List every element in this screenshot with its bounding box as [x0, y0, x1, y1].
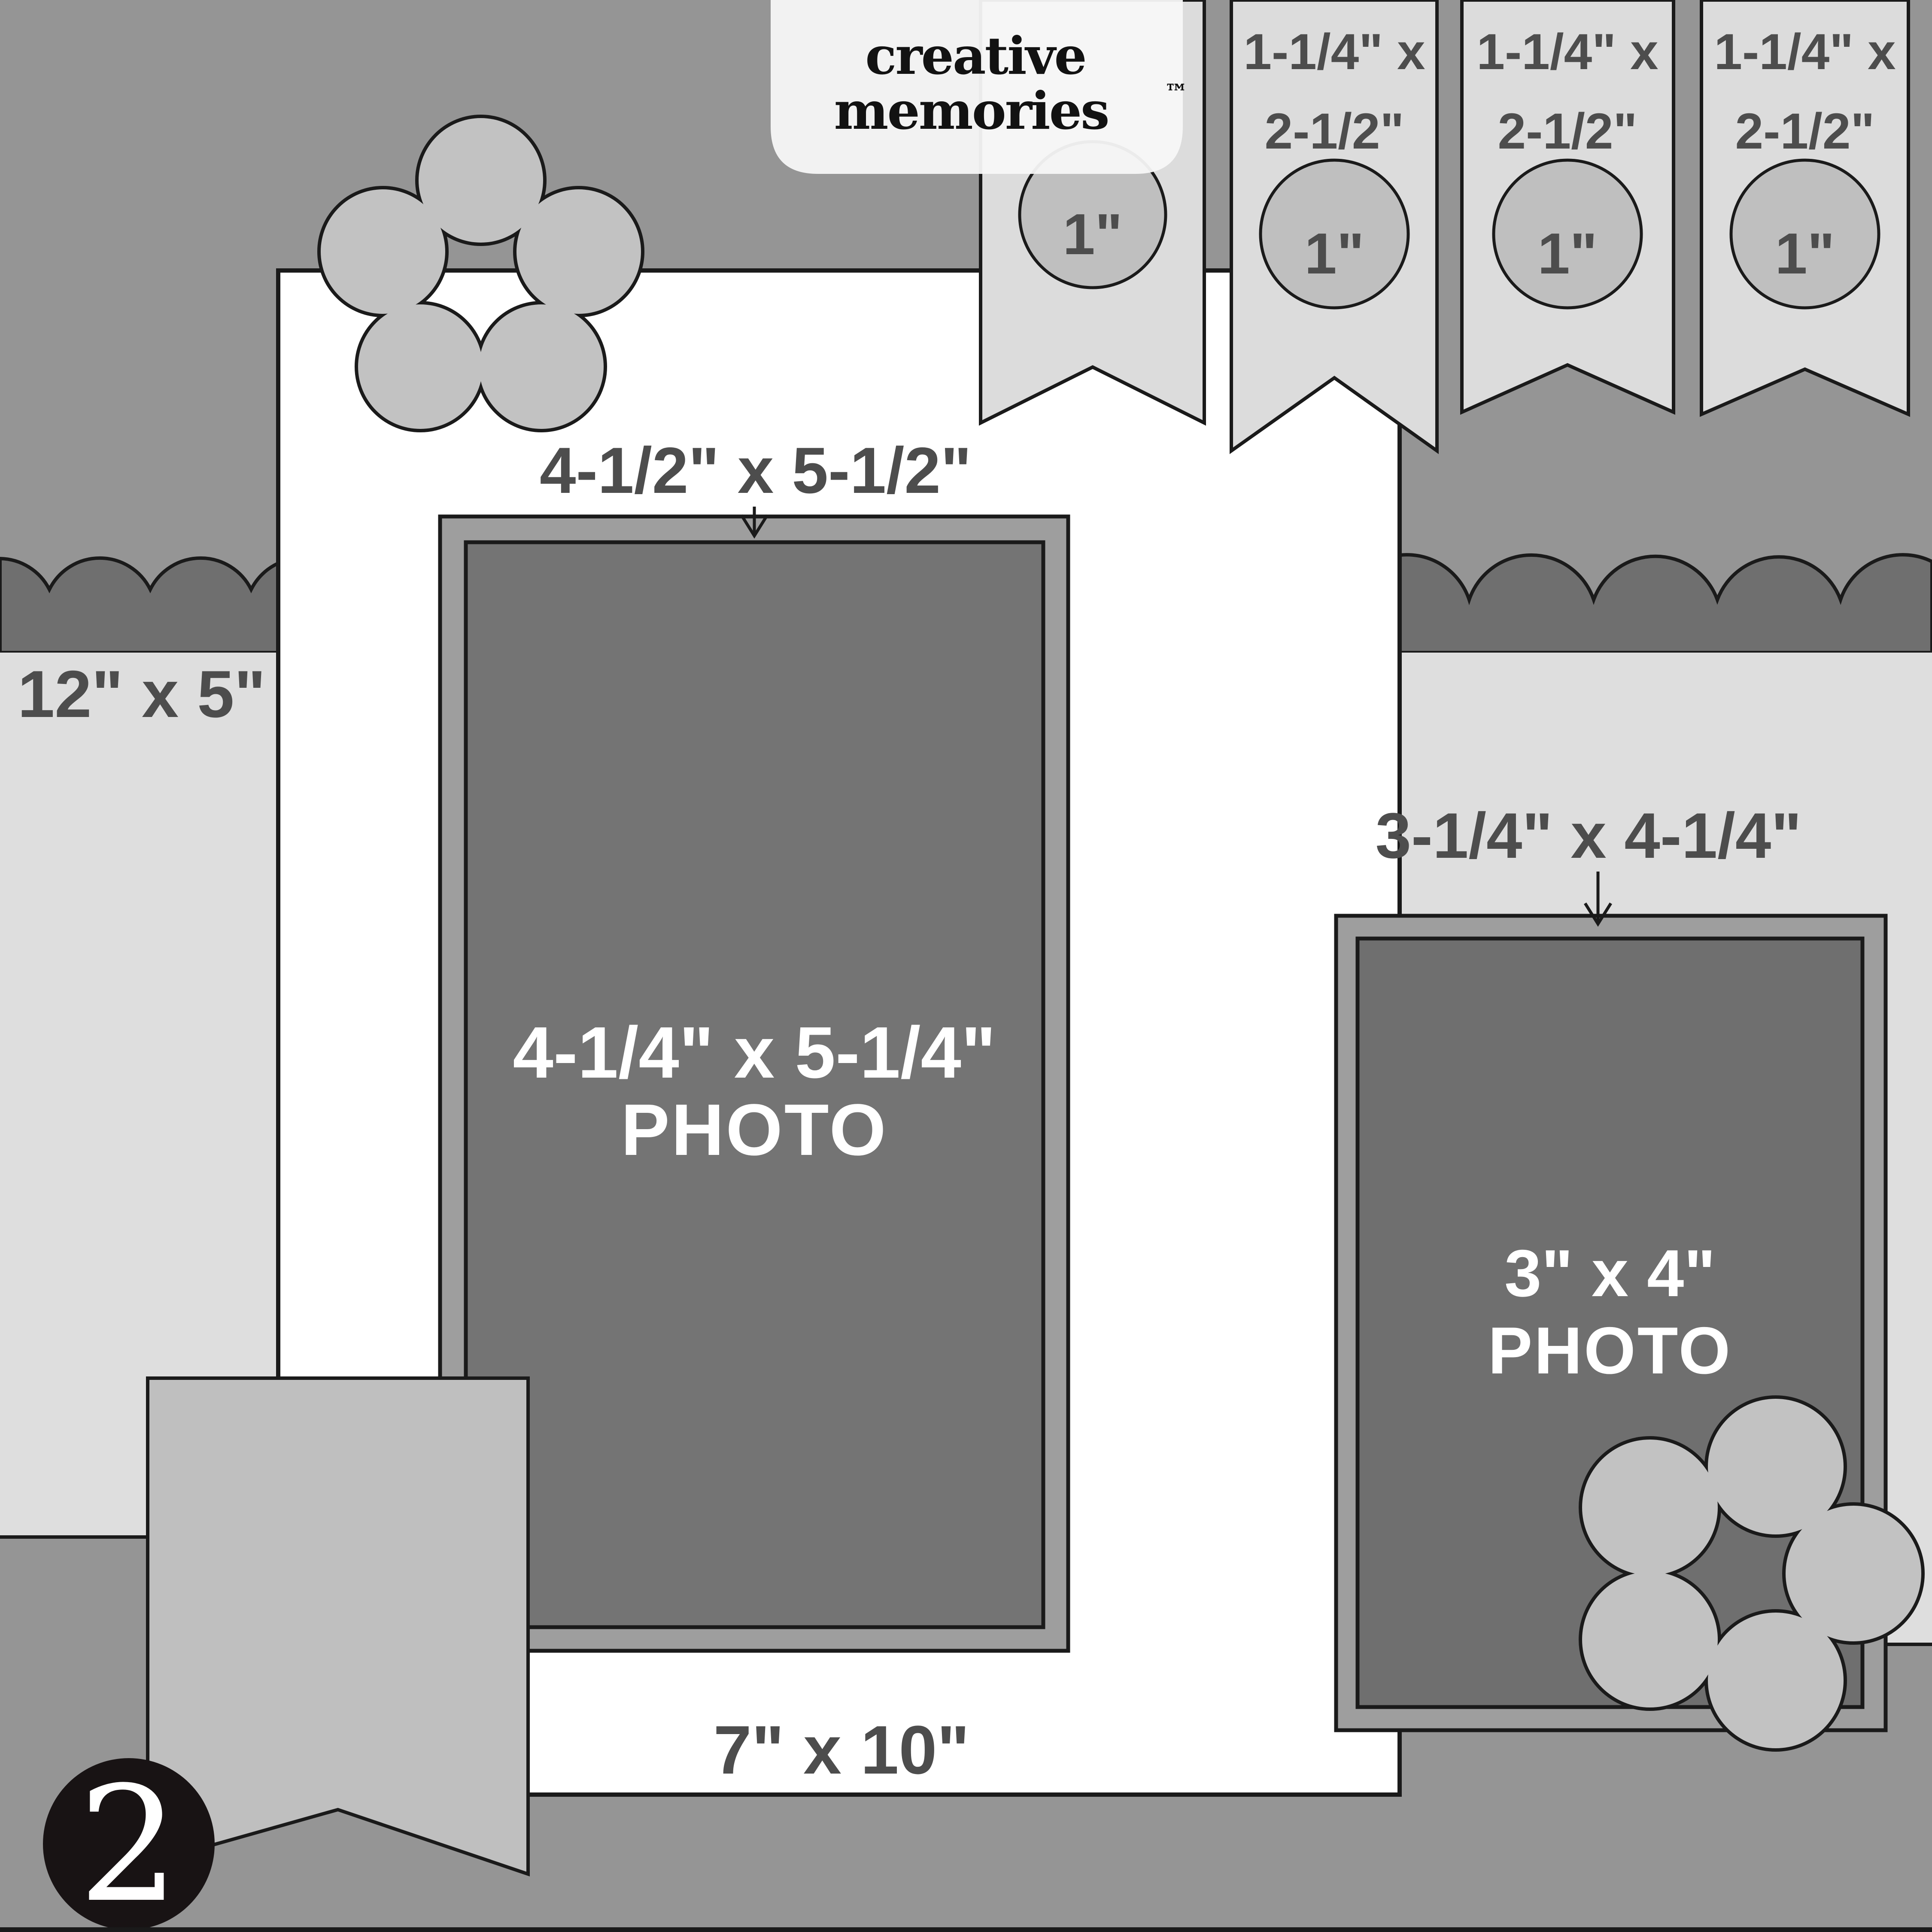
scrapbook-sketch-page: 12" x 5" 7" x 10" 4-1/4" x 5-1/4" PHOTO … [0, 0, 1932, 1932]
pennant-size-line1: 1-1/4" x [1714, 24, 1896, 80]
main-photo-word: PHOTO [621, 1089, 887, 1171]
step-number: 2 [78, 1753, 179, 1932]
panel-12x5-label: 12" x 5" [18, 657, 266, 731]
page-7x10-label: 7" x 10" [714, 1711, 970, 1788]
right-photo-word: PHOTO [1488, 1313, 1732, 1388]
main-mat-label: 4-1/2" x 5-1/2" [540, 434, 972, 507]
pennant-circle-label: 1" [1063, 202, 1122, 267]
pennant-size-line2: 2-1/2" [1735, 103, 1875, 160]
right-photo-size: 3" x 4" [1504, 1236, 1716, 1310]
pennant-size-line1: 1-1/4" x [1476, 24, 1658, 80]
logo-line1: creative [865, 26, 1085, 86]
pennant-circle-label: 1" [1775, 221, 1835, 286]
banner-card [148, 1378, 528, 1874]
pennant-size-line2: 2-1/2" [1498, 103, 1637, 160]
pennant-banner: 1-1/4" x 2-1/2" 1" [1462, 0, 1674, 412]
creative-memories-logo: creative memories ™ [771, 0, 1188, 174]
bottom-border [0, 1927, 1932, 1932]
pennant-circle-label: 1" [1537, 221, 1597, 286]
logo-tm: ™ [1164, 79, 1188, 106]
logo-line2: memories [834, 81, 1108, 141]
pennant-circle-label: 1" [1304, 221, 1364, 286]
pennant-size-line1: 1-1/4" x [1243, 24, 1425, 80]
main-photo-size: 4-1/4" x 5-1/4" [513, 1012, 996, 1094]
pennant-banner: 1-1/4" x 2-1/2" 1" [1701, 0, 1908, 414]
main-photo-mat: 4-1/4" x 5-1/4" PHOTO [440, 516, 1068, 1651]
pennant-size-line2: 2-1/2" [1265, 103, 1404, 160]
right-mat-label: 3-1/4" x 4-1/4" [1376, 799, 1802, 872]
